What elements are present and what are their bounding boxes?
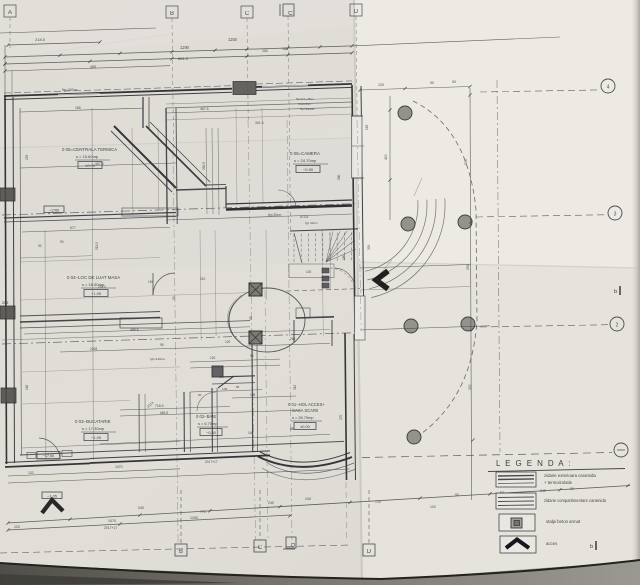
svg-text:253: 253 (25, 154, 29, 160)
svg-text:b: b (614, 289, 617, 295)
svg-text:120: 120 (210, 356, 216, 360)
svg-text:+ termoizolatie: + termoizolatie (544, 480, 573, 485)
svg-text:60: 60 (198, 393, 202, 397)
svg-text:L E G E N D A :: L E G E N D A : (496, 459, 572, 468)
svg-text:stalpi beton armat: stalpi beton armat (546, 519, 581, 524)
svg-text:50: 50 (452, 80, 456, 84)
svg-text:88: 88 (290, 427, 294, 431)
svg-text:393: 393 (367, 244, 371, 250)
svg-text:350.5: 350.5 (202, 162, 206, 170)
svg-text:s = 26.70mp: s = 26.70mp (292, 415, 314, 420)
svg-text:330: 330 (468, 384, 472, 390)
svg-text:90: 90 (38, 244, 42, 248)
svg-text:±0.00: ±0.00 (300, 424, 311, 429)
svg-text:s = 6.70mp: s = 6.70mp (198, 421, 217, 426)
svg-text:B: B (170, 11, 174, 17)
svg-text:fyp.30cm: fyp.30cm (305, 221, 318, 225)
svg-text:−0.80: −0.80 (206, 430, 217, 435)
svg-text:Np=162un: Np=162un (300, 107, 315, 111)
svg-text:861.3: 861.3 (178, 56, 189, 61)
svg-text:485: 485 (90, 65, 96, 69)
svg-text:3: 3 (614, 212, 617, 218)
svg-text:213.5: 213.5 (95, 242, 99, 250)
svg-text:−1.05: −1.05 (47, 494, 57, 499)
svg-text:240: 240 (138, 506, 144, 510)
svg-text:0 03−BUCATARIE: 0 03−BUCATARIE (75, 419, 111, 424)
svg-text:103: 103 (430, 505, 436, 509)
svg-text:420: 420 (384, 154, 388, 160)
svg-text:D: D (367, 549, 372, 555)
svg-text:467.5: 467.5 (95, 162, 104, 166)
svg-text:zidarie exterioara caramida: zidarie exterioara caramida (544, 473, 596, 478)
svg-text:85: 85 (236, 385, 240, 389)
svg-text:160: 160 (25, 384, 29, 390)
svg-text:C: C (258, 545, 263, 551)
svg-text:D: D (354, 9, 359, 15)
svg-text:1070: 1070 (108, 519, 116, 523)
svg-text:2: 2 (616, 323, 619, 329)
svg-text:2013: 2013 (98, 285, 106, 289)
svg-text:132: 132 (28, 471, 34, 475)
svg-text:1200: 1200 (190, 516, 198, 520)
svg-text:120: 120 (225, 340, 231, 344)
svg-text:218.5: 218.5 (35, 37, 46, 42)
svg-text:B: B (179, 549, 183, 555)
svg-text:A: A (8, 10, 12, 16)
svg-text:−1.05: −1.05 (91, 435, 102, 440)
svg-text:120: 120 (378, 83, 384, 87)
svg-text:105: 105 (250, 393, 256, 397)
svg-text:240: 240 (540, 489, 546, 493)
svg-text:90: 90 (60, 240, 64, 244)
svg-text:194: 194 (148, 280, 154, 284)
svg-text:1070: 1070 (115, 465, 123, 469)
svg-text:467.5: 467.5 (200, 107, 209, 111)
svg-text:2017+17: 2017+17 (205, 460, 218, 464)
svg-text:240: 240 (268, 501, 274, 505)
svg-text:s = 15.60mp: s = 15.60mp (76, 154, 99, 159)
svg-text:1190: 1190 (180, 45, 190, 50)
svg-text:zidarie compartimentare carami: zidarie compartimentare caramida (544, 498, 607, 503)
svg-text:fyp=120cm: fyp=120cm (150, 357, 166, 361)
svg-text:acces: acces (546, 541, 557, 546)
svg-text:105: 105 (222, 387, 227, 391)
svg-text:D: D (289, 543, 295, 547)
svg-text:Np=200un: Np=200un (62, 88, 77, 92)
svg-text:D: D (287, 11, 293, 16)
svg-text:b: b (590, 544, 593, 550)
svg-text:488.5: 488.5 (130, 328, 139, 332)
svg-text:120: 120 (14, 525, 20, 529)
svg-text:90: 90 (570, 487, 574, 491)
svg-text:180: 180 (342, 254, 346, 260)
svg-text:270: 270 (339, 414, 343, 420)
svg-text:393: 393 (466, 264, 470, 270)
svg-text:s = 24.70mp: s = 24.70mp (294, 158, 317, 163)
svg-text:−1760: −1760 (49, 209, 59, 213)
svg-text:90: 90 (430, 81, 434, 85)
svg-text:0 01−HOL ACCES+: 0 01−HOL ACCES+ (288, 402, 325, 407)
svg-text:#83.5: #83.5 (160, 411, 168, 415)
svg-text:−17,60: −17,60 (43, 454, 54, 458)
svg-text:2017+17: 2017+17 (104, 526, 117, 530)
svg-text:210: 210 (200, 277, 206, 281)
svg-text:4: 4 (607, 85, 610, 91)
svg-text:95: 95 (160, 343, 164, 347)
svg-text:240: 240 (305, 497, 311, 501)
svg-text:163: 163 (282, 47, 288, 51)
svg-text:310: 310 (293, 384, 297, 390)
svg-text:95: 95 (172, 296, 176, 300)
svg-text:203: 203 (2, 301, 8, 305)
svg-text:533: 533 (464, 159, 468, 165)
svg-text:0 02−BAIE: 0 02−BAIE (196, 414, 216, 419)
svg-text:100: 100 (306, 270, 312, 274)
svg-text:140: 140 (248, 431, 254, 435)
svg-text:150: 150 (262, 49, 268, 53)
svg-text:−0.50: −0.50 (303, 167, 314, 172)
svg-text:Np=41+45un: Np=41+45un (296, 97, 314, 101)
svg-text:98: 98 (249, 316, 253, 320)
svg-text:90: 90 (455, 493, 459, 497)
svg-text:0 04−LOC DE LUAT MASA: 0 04−LOC DE LUAT MASA (67, 275, 120, 280)
svg-text:163: 163 (365, 124, 369, 130)
svg-text:1150: 1150 (228, 37, 238, 42)
svg-text:95: 95 (250, 354, 254, 358)
svg-text:770: 770 (200, 510, 206, 514)
svg-text:873.5: 873.5 (300, 215, 308, 219)
svg-text:165: 165 (75, 106, 81, 110)
svg-text:718.5: 718.5 (155, 404, 164, 408)
svg-text:1008: 1008 (90, 347, 97, 351)
svg-text:280: 280 (337, 174, 341, 180)
svg-text:C: C (245, 11, 250, 17)
svg-text:677: 677 (70, 226, 76, 230)
svg-text:0 05=CENTRALA TERMICA: 0 05=CENTRALA TERMICA (62, 147, 117, 152)
svg-text:720: 720 (375, 500, 381, 504)
svg-text:0 06=CAMERA: 0 06=CAMERA (290, 151, 320, 156)
svg-text:265: 265 (290, 337, 296, 341)
